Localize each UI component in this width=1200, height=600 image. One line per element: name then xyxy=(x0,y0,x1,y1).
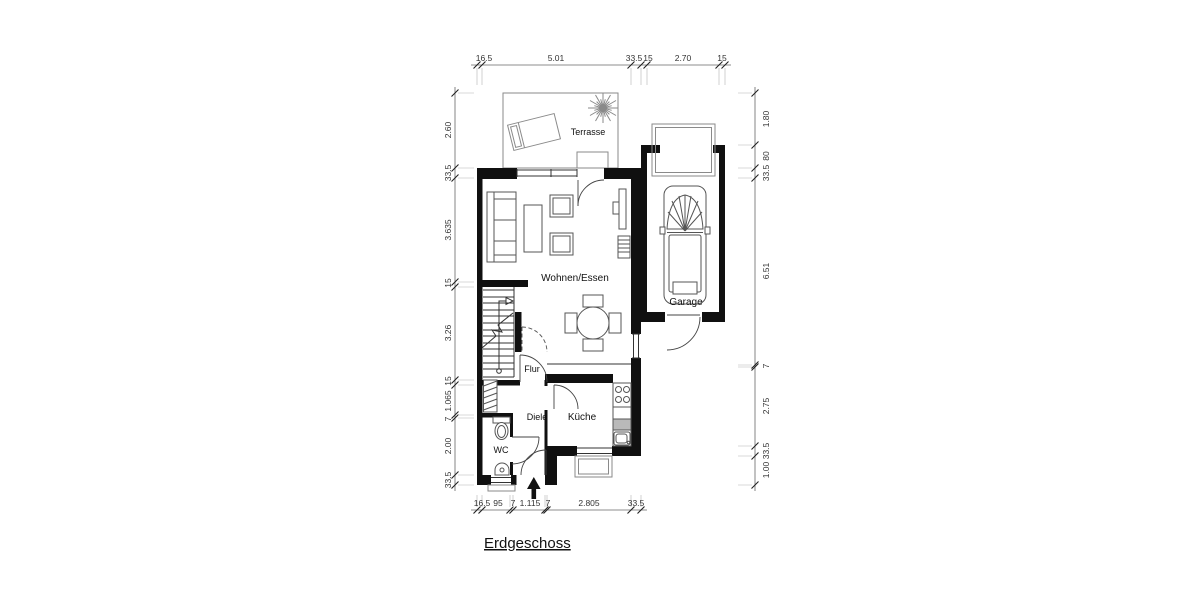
dimension-chain-left: 2.60 33.5 3.635 15 3.26 15 1.065 7 2.00 … xyxy=(443,87,474,491)
garage-door-panel xyxy=(652,124,715,176)
dim-right-7: 1.00 xyxy=(761,461,771,478)
living-room-furniture xyxy=(487,189,630,351)
living-room-side-window xyxy=(632,334,640,358)
room-label-garage: Garage xyxy=(669,297,703,308)
armchair xyxy=(550,195,573,217)
plan-title: Erdgeschoss xyxy=(484,535,571,552)
dim-bottom-4: 7 xyxy=(546,498,551,508)
dim-left-1: 33.5 xyxy=(443,164,453,181)
floorplan-canvas: Terrasse xyxy=(0,0,1200,600)
dining-chair xyxy=(583,295,603,307)
coffee-table xyxy=(524,205,542,252)
dim-right-3: 6.51 xyxy=(761,262,771,279)
terrace-door xyxy=(578,180,604,206)
living-room-window xyxy=(517,169,577,177)
dining-chair xyxy=(609,313,621,333)
living-flur-passage xyxy=(522,327,547,352)
dim-left-8: 2.00 xyxy=(443,437,453,454)
entrance-arrow-icon xyxy=(527,477,541,499)
dim-top-1: 5.01 xyxy=(548,53,565,63)
armchair xyxy=(550,233,573,255)
wc-window xyxy=(488,478,515,492)
dim-top-3: 15 xyxy=(643,53,653,63)
tv-sideboard xyxy=(613,189,626,229)
dim-bottom-3: 1.115 xyxy=(520,498,541,508)
tree-icon xyxy=(588,93,618,123)
dim-right-5: 2.75 xyxy=(761,397,771,414)
room-label-flur: Flur xyxy=(524,364,540,374)
stove-icon xyxy=(613,383,631,407)
dim-bottom-2: 7 xyxy=(511,498,516,508)
hall-radiator xyxy=(484,380,498,412)
dining-chair xyxy=(583,339,603,351)
stair-direction-arrow xyxy=(497,298,513,374)
dim-right-0: 1.80 xyxy=(761,110,771,127)
dim-right-6: 33.5 xyxy=(761,442,771,459)
toilet xyxy=(493,417,510,440)
dimension-chain-right: 1.80 80 33.5 6.51 7 2.75 33.5 1.00 xyxy=(738,87,771,491)
dim-left-3: 15 xyxy=(443,278,453,288)
dim-right-2: 33.5 xyxy=(761,164,771,181)
room-label-terrasse: Terrasse xyxy=(571,127,606,137)
staircase xyxy=(482,287,514,377)
dimension-chain-top: 16.5 5.01 33.5 15 2.70 15 xyxy=(471,53,731,85)
dim-left-6: 1.065 xyxy=(443,390,453,412)
dining-table-set xyxy=(565,295,621,351)
dim-left-0: 2.60 xyxy=(443,121,453,138)
wc-window-sill xyxy=(488,485,515,491)
dim-right-4: 7 xyxy=(761,363,771,368)
dim-top-2: 33.5 xyxy=(626,53,643,63)
floorplan-drawing: Terrasse xyxy=(0,0,1200,600)
kitchen-window xyxy=(575,448,612,477)
kitchen-sink xyxy=(614,432,630,445)
dim-right-1: 80 xyxy=(761,151,771,161)
terrace-doormat xyxy=(577,152,608,168)
dim-left-2: 3.635 xyxy=(443,219,453,241)
kitchen-door xyxy=(554,385,578,409)
dim-bottom-5: 2.805 xyxy=(578,498,600,508)
car-icon xyxy=(660,186,710,304)
sofa xyxy=(487,192,516,262)
dim-top-4: 2.70 xyxy=(675,53,692,63)
dim-left-4: 3.26 xyxy=(443,324,453,341)
room-label-wohnen-essen: Wohnen/Essen xyxy=(541,273,609,284)
dim-top-5: 15 xyxy=(717,53,727,63)
wc-sink xyxy=(495,463,509,475)
dimension-chain-bottom: 16.5 95 7 1.115 7 2.805 33.5 xyxy=(471,495,647,514)
room-label-diele: Diele xyxy=(527,412,548,422)
dining-table xyxy=(577,307,609,339)
dim-bottom-6: 33.5 xyxy=(628,498,645,508)
garage-side-door xyxy=(667,315,700,350)
dim-top-0: 16.5 xyxy=(476,53,493,63)
dim-bottom-1: 95 xyxy=(493,498,503,508)
entrance-door xyxy=(521,450,546,475)
terrace: Terrasse xyxy=(503,93,618,168)
room-label-wc: WC xyxy=(494,445,509,455)
dim-left-9: 33.5 xyxy=(443,471,453,488)
dim-bottom-0: 16.5 xyxy=(474,498,491,508)
dim-left-5: 15 xyxy=(443,376,453,386)
dim-left-7: 7 xyxy=(443,416,453,421)
dishwasher xyxy=(613,419,631,430)
room-label-kueche: Küche xyxy=(568,412,597,423)
dining-chair xyxy=(565,313,577,333)
radiator xyxy=(618,236,630,258)
kitchen-fixtures xyxy=(613,383,631,446)
sun-lounger-icon xyxy=(508,114,561,151)
